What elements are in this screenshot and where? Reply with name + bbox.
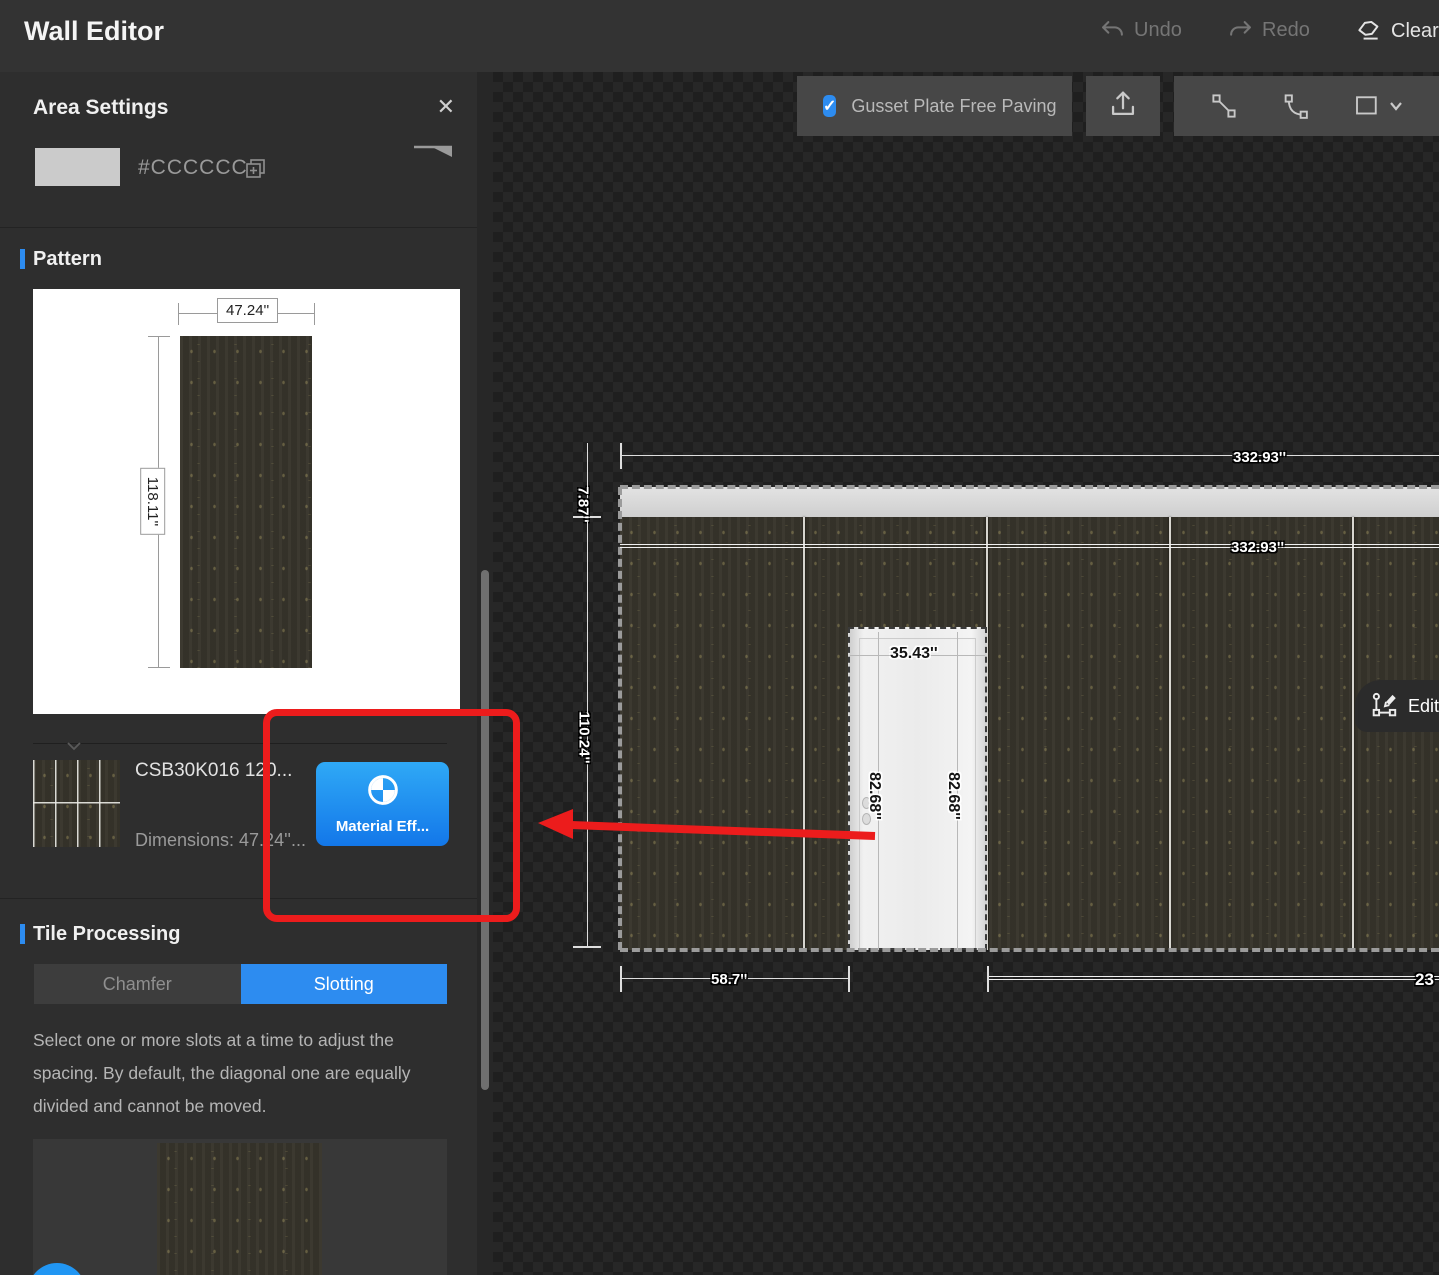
chevron-down-icon[interactable] — [66, 738, 82, 756]
header-bar: Wall Editor Undo Redo Clear — [0, 0, 1439, 72]
dim-label-wall-width-inner: 332.93'' — [1231, 539, 1284, 556]
redo-icon — [1228, 18, 1253, 43]
upload-button[interactable] — [1086, 76, 1160, 136]
edit-label: Edit — [1408, 696, 1439, 717]
divider — [0, 227, 477, 228]
wall-selection-dash-left — [618, 487, 622, 950]
wall-selection-dash-bottom — [620, 948, 1439, 952]
panel-title: Area Settings — [33, 96, 168, 120]
tab-slotting[interactable]: Slotting — [241, 964, 448, 1004]
redo-button[interactable]: Redo — [1228, 18, 1310, 43]
sidebar-scrollbar-thumb[interactable] — [481, 570, 489, 1090]
sidebar-scrollbar-track — [477, 72, 493, 1275]
dim-label-wall-height: 110.24'' — [576, 711, 593, 763]
grout-line — [1352, 517, 1354, 950]
dim-label-door-height-right: 82.68'' — [944, 772, 962, 820]
dim-label-door-height-left: 82.68'' — [865, 772, 883, 820]
tile-processing-tabs: Chamfer Slotting — [34, 964, 447, 1004]
dim-label-right-segment: 23 — [1415, 970, 1434, 990]
wall-canvas[interactable]: ✓ Gusset Plate Free Paving — [493, 72, 1439, 1275]
material-effect-label: Material Eff... — [336, 818, 429, 835]
dim-label-wall-width-top: 332.93'' — [1233, 449, 1286, 466]
material-name: CSB30K016 120... — [135, 760, 292, 782]
tile-height-label: 118.11'' — [140, 468, 165, 535]
edit-path-icon — [1371, 690, 1399, 723]
divider — [0, 898, 477, 899]
tile-processing-accent-bar — [20, 924, 25, 944]
material-thumbnail[interactable] — [33, 760, 120, 847]
divider — [33, 743, 447, 744]
clear-label: Clear — [1391, 20, 1439, 43]
tile-processing-section-title: Tile Processing — [33, 923, 180, 946]
dim-tick — [573, 946, 601, 948]
material-dimensions: Dimensions: 47.24''... — [135, 830, 306, 851]
slotting-description: Select one or more slots at a time to ad… — [33, 1024, 433, 1123]
color-swatch[interactable] — [35, 148, 120, 186]
grout-line — [1169, 517, 1171, 950]
arc-tool-icon[interactable] — [1280, 91, 1310, 121]
wall-editor-app: Wall Editor Undo Redo Clear Area Setting… — [0, 0, 1439, 1275]
wall-tile-surface[interactable] — [620, 517, 1439, 950]
close-icon[interactable]: ✕ — [437, 96, 455, 118]
dim-line-right-segment — [987, 976, 1439, 980]
gusset-checkbox-group[interactable]: ✓ Gusset Plate Free Paving — [797, 76, 1072, 136]
pattern-section-title: Pattern — [33, 248, 102, 271]
pattern-accent-bar — [20, 249, 25, 269]
tab-chamfer[interactable]: Chamfer — [34, 964, 241, 1004]
wall-selection-dash-top — [620, 485, 1439, 489]
undo-icon — [1100, 18, 1125, 43]
dim-tick — [987, 966, 989, 992]
tile-preview-image — [180, 336, 312, 668]
slotting-tile-image — [157, 1143, 322, 1275]
collapse-arrow-icon[interactable] — [412, 142, 458, 165]
wall-top-slab — [620, 487, 1439, 517]
shape-tools-group — [1174, 76, 1439, 136]
upload-icon — [1106, 87, 1140, 126]
slotting-preview-panel — [33, 1139, 447, 1275]
area-settings-panel: Area Settings ✕ #CCCCCC Pattern 47.24'' … — [0, 72, 477, 1275]
dim-line-wall-width-top — [620, 455, 1439, 456]
page-title: Wall Editor — [24, 16, 164, 47]
tile-width-label: 47.24'' — [217, 298, 278, 323]
dim-label-slab-height: 7.87'' — [575, 486, 592, 522]
undo-label: Undo — [1134, 19, 1182, 42]
grout-line — [803, 517, 805, 950]
undo-button[interactable]: Undo — [1100, 18, 1182, 43]
gusset-checkbox-label: Gusset Plate Free Paving — [851, 96, 1056, 117]
dim-tick — [848, 966, 850, 992]
thumbnail-grid-overlay — [33, 760, 120, 847]
rect-tool-icon[interactable] — [1352, 91, 1404, 121]
checkbox-checked-icon[interactable]: ✓ — [823, 95, 836, 117]
chevron-down-icon — [1388, 98, 1404, 114]
dim-label-door-width: 35.43'' — [890, 645, 938, 663]
dim-tick — [620, 966, 622, 992]
line-tool-icon[interactable] — [1209, 91, 1239, 121]
edit-button[interactable]: Edit — [1355, 680, 1439, 732]
clear-button[interactable]: Clear — [1356, 18, 1439, 44]
dim-label-left-segment: 58.7'' — [711, 971, 747, 988]
material-effect-icon — [366, 773, 400, 812]
redo-label: Redo — [1262, 19, 1310, 42]
copy-icon[interactable] — [243, 156, 269, 187]
dim-line-wall-width-inner — [620, 544, 1439, 548]
dim-tick — [620, 443, 622, 469]
eraser-icon — [1356, 18, 1382, 44]
pattern-preview: 47.24'' 118.11'' — [33, 289, 460, 714]
color-hex-label: #CCCCCC — [138, 156, 248, 180]
material-effect-button[interactable]: Material Eff... — [316, 762, 449, 846]
